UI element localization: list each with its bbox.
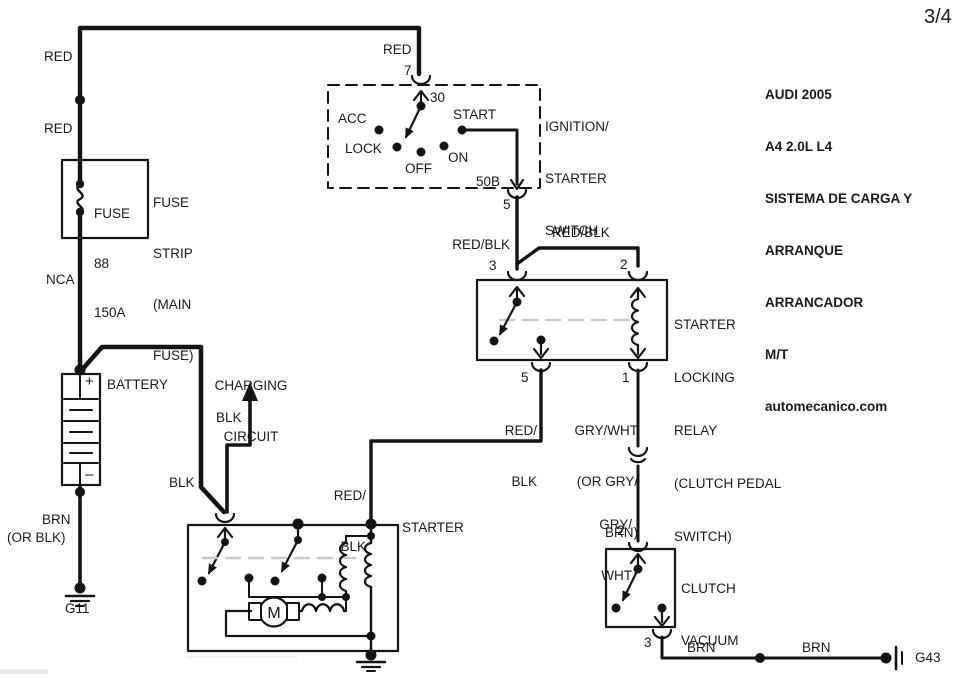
wire-color-label: BRN [42,511,71,528]
starter-locking-relay-symbol [477,272,667,371]
component-name-line: (CLUTCH PEDAL [674,474,781,493]
starter-symbol [188,514,398,652]
starter-name: STARTER [402,519,464,536]
battery-plus-sign: + [85,373,94,392]
terminal-number: 5 [521,369,529,386]
switch-position-label: START [453,106,496,123]
fuse-value-line: 150A [94,305,130,321]
clutch-switch-name: CLUTCH VACUUM VENT VALVE SWITCH [681,546,762,678]
wire-color-label: RED [44,120,73,137]
wire-color-line: WHT [584,567,632,584]
battery-symbol [62,374,100,487]
title-line: SISTEMA DE CARGA Y [765,190,912,208]
wire-color-label: RED/ BLK [480,388,537,524]
component-name-line: RELAY [674,421,781,440]
title-line: A4 2.0L L4 [765,138,912,156]
terminal-number: 3 [489,257,497,274]
wire-color-label: BLK [169,474,195,491]
battery-minus-sign: – [85,466,93,485]
wire-color-label: RED/BLK [552,224,610,241]
terminal-number: 50B [476,173,500,190]
wire-color-label: RED [44,48,73,65]
fuse-name-label: FUSE STRIP (MAIN FUSE) [153,160,194,398]
component-name-line: STARTER [545,170,609,188]
switch-position-label: LOCK [345,140,382,157]
title-line: automecanico.com [765,398,912,416]
title-line: ARRANQUE [765,242,912,260]
terminal-number: 2 [617,522,625,539]
switch-position-label: ACC [338,110,367,127]
ground-starter-icon [357,650,385,672]
charging-line: CHARGING [205,377,297,394]
scan-artifact [186,656,298,658]
wiring-diagram-page: 3/4 AUDI 2005 A4 2.0L L4 SISTEMA DE CARG… [0,0,970,678]
ground-id-label: G43 [915,649,941,666]
wire-color-label: RED/ BLK [318,453,366,589]
component-name-line: IGNITION/ [545,118,609,136]
wire-color-label: NCA [46,271,75,288]
component-name-line: CLUTCH [681,580,762,598]
title-line: AUDI 2005 [765,86,912,104]
wire-color-label: GRY/ WHT [584,482,632,618]
wire-color-line: RED/ [480,422,537,439]
scan-artifact [0,669,48,674]
fuse-name-line: STRIP [153,245,194,262]
fuse-value-label: FUSE 88 150A [94,172,130,355]
fuse-name-line: (MAIN [153,296,194,313]
wire-color-label: BRN [802,639,831,656]
ignition-switch-name: IGNITION/ STARTER SWITCH [545,84,609,274]
switch-position-label: OFF [405,160,432,177]
wire-color-line: GRY/ [584,516,632,533]
fuse-name-line: FUSE [153,194,194,211]
title-line: ARRANCADOR [765,294,912,312]
terminal-number: 30 [430,89,445,106]
terminal-number: 7 [404,62,412,79]
battery-label: BATTERY [107,376,168,393]
wire-color-line: BLK [480,473,537,490]
charging-line: CIRCUIT [205,428,297,445]
title-block: AUDI 2005 A4 2.0L L4 SISTEMA DE CARGA Y … [765,52,912,450]
terminal-number: 2 [620,256,628,273]
fuse-name-line: FUSE) [153,347,194,364]
component-name-line: LOCKING [674,368,781,387]
component-name-line: STARTER [674,315,781,334]
wire-color-label: RED/BLK [445,236,510,253]
motor-letter: M [267,605,280,622]
wire-color-line: BLK [318,538,366,555]
wire-color-label: BRN [687,639,716,656]
relay-name: STARTER LOCKING RELAY (CLUTCH PEDAL SWIT… [674,281,781,580]
ground-id-label: G11 [65,600,90,617]
terminal-number: 3 [644,634,652,651]
title-line: M/T [765,346,912,364]
wire-color-label: BLK [216,409,242,426]
fuse-value-line: 88 [94,256,130,272]
terminal-number: 1 [622,369,630,386]
page-number: 3/4 [924,5,952,30]
wire-color-line: RED/ [318,487,366,504]
fuse-value-line: FUSE [94,206,130,222]
terminal-number: 5 [503,196,511,213]
wire-color-alt-label: (OR BLK) [7,529,66,546]
wire-color-label: RED [383,41,412,58]
wire-color-line: GRY/WHT [558,422,638,439]
motor-m-glyph: M [259,597,289,627]
switch-position-label: ON [448,149,468,166]
component-name-line: SWITCH) [674,527,781,546]
